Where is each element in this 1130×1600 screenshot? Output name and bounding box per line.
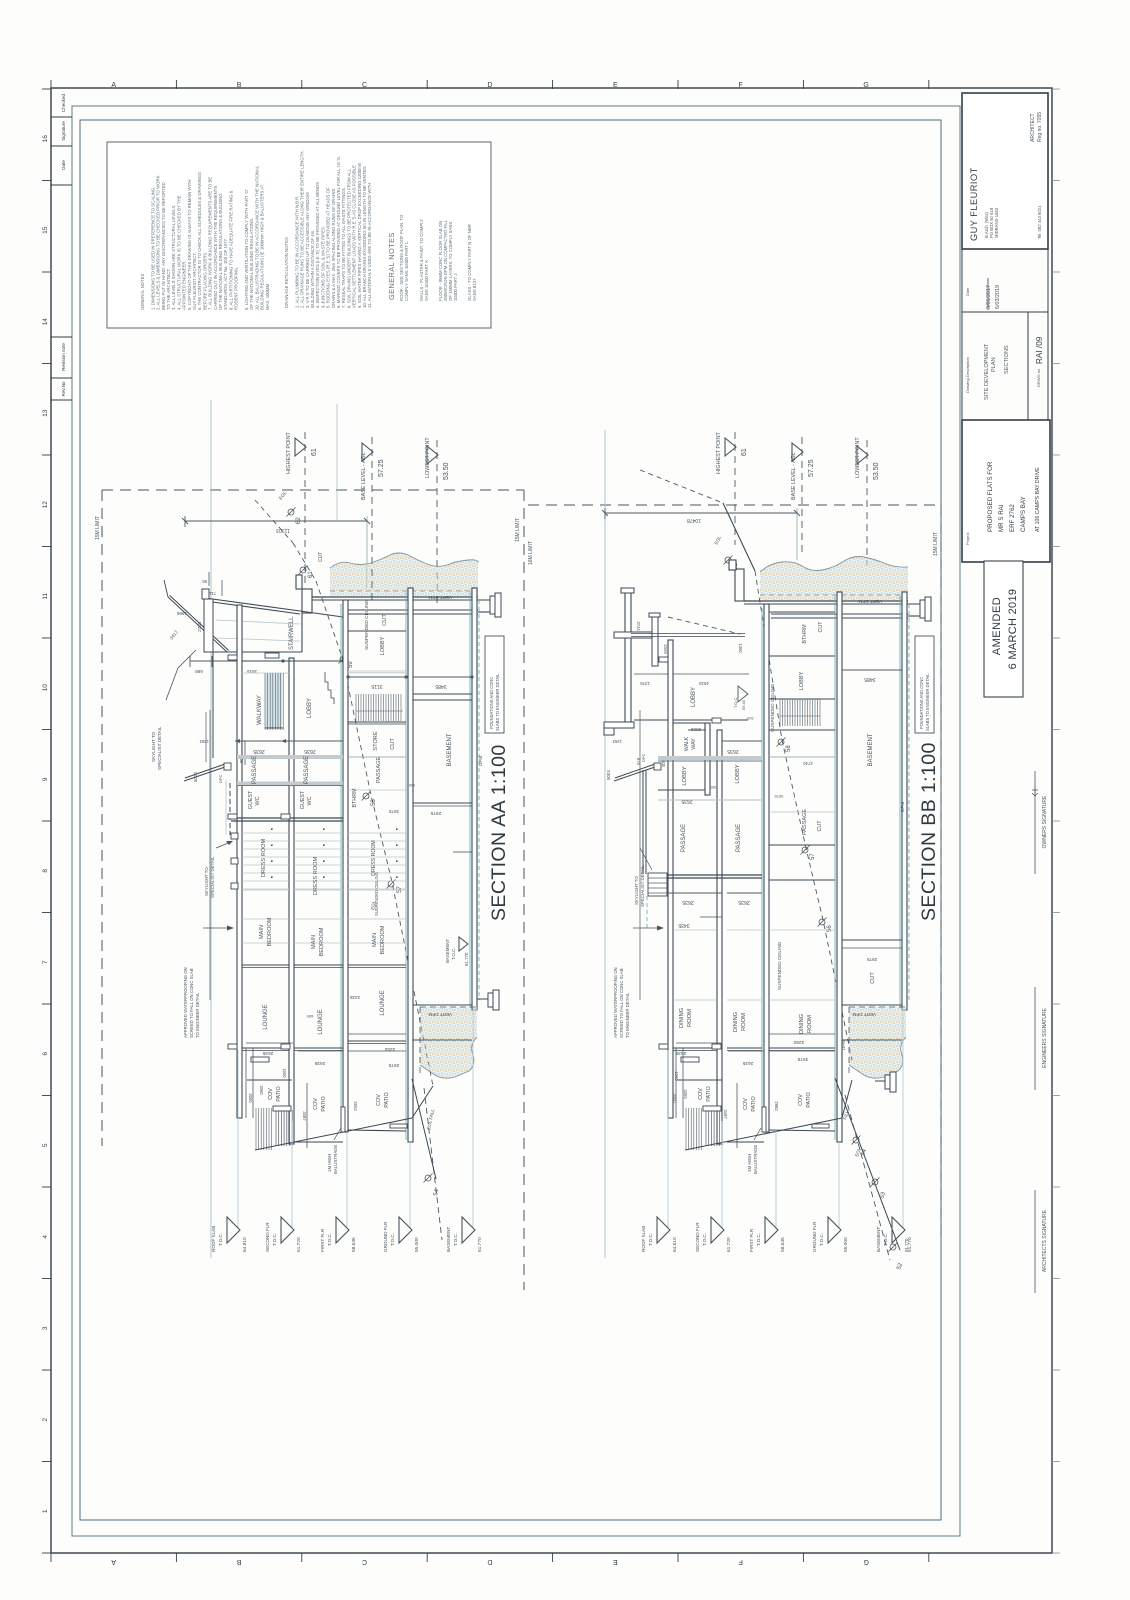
svg-text:VERT DPM: VERT DPM: [858, 599, 882, 604]
svg-text:1060: 1060: [674, 1071, 679, 1081]
svg-text:2635: 2635: [742, 1060, 753, 1066]
svg-text:CUT: CUT: [818, 621, 824, 633]
svg-text:PASSAGE: PASSAGE: [681, 824, 687, 852]
svg-text:GUY FLEURIOT: GUY FLEURIOT: [969, 167, 979, 241]
svg-text:3360: 3360: [259, 1085, 264, 1095]
svg-text:61: 61: [311, 448, 318, 456]
svg-text:2662: 2662: [353, 1101, 358, 1111]
svg-text:STORE: STORE: [373, 731, 379, 750]
svg-text:11303: 11303: [276, 527, 290, 533]
svg-text:WALK: WALK: [684, 736, 690, 751]
svg-text:ROOF SLAB: ROOF SLAB: [641, 1226, 646, 1252]
svg-text:6: 6: [42, 1052, 49, 1056]
svg-text:E: E: [613, 82, 618, 89]
svg-text:6 MARCH 2019: 6 MARCH 2019: [1007, 589, 1019, 670]
svg-text:SKYLIGHT TO: SKYLIGHT TO: [204, 867, 209, 896]
svg-text:ERF 2762: ERF 2762: [1009, 504, 1016, 532]
svg-text:PROPOSED FLATS FOR: PROPOSED FLATS FOR: [987, 461, 994, 532]
svg-text:T.O.C.: T.O.C.: [648, 1233, 653, 1246]
svg-text:LOWEST POINT: LOWEST POINT: [425, 437, 431, 478]
svg-text:OWNERS SIGNATURE: OWNERS SIGNATURE: [1042, 795, 1048, 848]
svg-text:3975: 3975: [388, 809, 399, 814]
svg-text:DRESS ROOM: DRESS ROOM: [313, 857, 319, 896]
svg-text:VERT DPM: VERT DPM: [852, 1012, 876, 1017]
svg-text:B: B: [237, 82, 242, 89]
svg-text:BASEMENT: BASEMENT: [876, 1227, 881, 1252]
svg-text:SPECIALIST DETAIL: SPECIALIST DETAIL: [157, 726, 162, 770]
svg-text:LOBBY: LOBBY: [735, 764, 741, 783]
svg-text:SUSPENDED CEILING: SUSPENDED CEILING: [374, 872, 379, 916]
svg-text:SLABS TO ENGINEER DETAIL: SLABS TO ENGINEER DETAIL: [925, 673, 930, 731]
svg-text:GROUND FLR: GROUND FLR: [812, 1221, 817, 1252]
svg-text:ROOF SLAB: ROOF SLAB: [211, 1226, 216, 1252]
svg-text:53.50: 53.50: [443, 462, 450, 480]
svg-text:B: B: [236, 1558, 241, 1565]
svg-text:SPECIALIST DETAIL: SPECIALIST DETAIL: [210, 856, 215, 898]
svg-text:WC: WC: [255, 796, 261, 805]
svg-text:A: A: [111, 82, 116, 89]
svg-text:5: 5: [42, 1143, 49, 1147]
svg-text:GUEST: GUEST: [300, 790, 306, 809]
svg-text:BEDROOM: BEDROOM: [380, 925, 386, 954]
svg-text:TO ENGINEER DETAIL: TO ENGINEER DETAIL: [195, 992, 200, 1038]
svg-text:BEDROOM: BEDROOM: [319, 927, 325, 956]
svg-text:10400 PART J: 10400 PART J: [453, 274, 458, 301]
svg-text:BTHRM: BTHRM: [802, 624, 808, 644]
svg-text:T.O.C.: T.O.C.: [819, 1233, 824, 1246]
svg-text:64.610: 64.610: [672, 1237, 678, 1252]
svg-text:D: D: [487, 1558, 492, 1565]
svg-text:LOUNGE: LOUNGE: [380, 990, 386, 1015]
svg-text:A: A: [111, 1558, 116, 1565]
svg-text:61.720: 61.720: [296, 1237, 302, 1252]
svg-text:AT 106 CAMPS BAY DRIVE: AT 106 CAMPS BAY DRIVE: [1035, 467, 1041, 532]
svg-text:15: 15: [42, 226, 49, 234]
svg-text:2740: 2740: [803, 761, 813, 766]
svg-text:16M LIMIT: 16M LIMIT: [528, 541, 534, 565]
svg-text:95: 95: [202, 579, 207, 584]
svg-text:CAMPS BAY: CAMPS BAY: [1020, 496, 1027, 532]
svg-text:LOBBY: LOBBY: [307, 698, 313, 718]
svg-text:ROOM: ROOM: [687, 1009, 693, 1027]
svg-text:11: 11: [42, 592, 49, 599]
svg-text:Signature: Signature: [61, 121, 66, 141]
svg-text:14: 14: [42, 318, 49, 326]
svg-text:MAIN: MAIN: [311, 935, 317, 949]
svg-text:2635: 2635: [253, 748, 265, 754]
svg-text:59.45: 59.45: [741, 699, 746, 710]
svg-text:7: 7: [42, 960, 49, 964]
svg-text:SKYLIGHT TO: SKYLIGHT TO: [151, 731, 156, 762]
svg-text:LOUNGE: LOUNGE: [263, 1004, 269, 1029]
svg-text:PATIO: PATIO: [321, 1096, 327, 1111]
svg-text:BTHRM: BTHRM: [352, 788, 358, 808]
svg-text:5003: 5003: [606, 770, 611, 780]
svg-text:FOUNDATIONS AND CONC: FOUNDATIONS AND CONC: [919, 677, 924, 729]
svg-text:2635: 2635: [304, 748, 316, 754]
svg-text:SCREED TO FALL ON CONC SLAB: SCREED TO FALL ON CONC SLAB: [619, 968, 624, 1038]
svg-text:711: 711: [209, 591, 216, 596]
svg-text:Tel. 082 443 6021: Tel. 082 443 6021: [1037, 205, 1042, 239]
svg-text:3435: 3435: [349, 995, 360, 1000]
svg-text:ARCHITECT: ARCHITECT: [1030, 113, 1036, 142]
svg-text:CUT: CUT: [390, 738, 396, 750]
svg-text:T.O.C.: T.O.C.: [390, 1233, 395, 1246]
svg-text:DPM: DPM: [841, 1040, 846, 1050]
svg-text:Reg no. 7055: Reg no. 7055: [1037, 112, 1043, 142]
svg-text:G: G: [863, 1558, 868, 1565]
svg-text:3576: 3576: [774, 794, 784, 799]
svg-text:PATIO: PATIO: [276, 1086, 282, 1101]
svg-text:CUT: CUT: [870, 972, 876, 984]
svg-text:COV: COV: [376, 1094, 382, 1106]
svg-text:2635: 2635: [314, 1060, 325, 1066]
svg-text:2349: 2349: [663, 644, 668, 654]
svg-text:T.O.C.: T.O.C.: [451, 948, 456, 960]
svg-text:T.O.C.: T.O.C.: [453, 1233, 458, 1246]
svg-text:COV: COV: [268, 1088, 274, 1100]
svg-text:COV: COV: [743, 1098, 749, 1110]
svg-text:T.O.C.: T.O.C.: [733, 697, 738, 708]
svg-text:SKYLIGHT TO: SKYLIGHT TO: [634, 876, 639, 905]
svg-text:2975: 2975: [430, 810, 441, 816]
svg-text:DRWG no: DRWG no: [1036, 368, 1041, 387]
svg-text:2635: 2635: [727, 748, 739, 754]
svg-text:DINING: DINING: [679, 1007, 685, 1028]
svg-text:GUEST: GUEST: [248, 790, 254, 809]
svg-text:61: 61: [741, 448, 748, 456]
svg-text:3975: 3975: [388, 1062, 399, 1068]
svg-text:3497: 3497: [723, 1109, 728, 1119]
svg-text:3115: 3115: [371, 683, 382, 689]
svg-text:T.O.C.: T.O.C.: [702, 1233, 707, 1246]
svg-text:T.O.C.: T.O.C.: [327, 1233, 332, 1246]
svg-text:51.770: 51.770: [477, 1237, 483, 1252]
svg-text:COMPLY SANS 10400 PART L: COMPLY SANS 10400 PART L: [404, 241, 409, 301]
svg-text:G: G: [863, 82, 868, 89]
svg-text:SECOND FLR: SECOND FLR: [265, 1222, 270, 1252]
svg-text:LOBBY: LOBBY: [691, 687, 697, 707]
svg-text:15M LIMIT: 15M LIMIT: [95, 516, 101, 540]
svg-text:CUT: CUT: [318, 552, 324, 562]
svg-text:LOBBY: LOBBY: [682, 766, 688, 785]
svg-text:SECOND FLR: SECOND FLR: [695, 1222, 700, 1252]
svg-text:PASSAGE: PASSAGE: [304, 756, 310, 784]
svg-text:RAI /09: RAI /09: [1035, 336, 1044, 364]
svg-text:DRAINAGE RETICULATION NOTES: DRAINAGE RETICULATION NOTES: [284, 237, 289, 308]
svg-text:3: 3: [42, 1326, 49, 1330]
svg-text:COV: COV: [798, 1094, 804, 1106]
svg-text:VERT DPM: VERT DPM: [428, 595, 452, 600]
svg-text:2703: 2703: [197, 621, 202, 632]
svg-text:APPROVED WATERPROOFING ON: APPROVED WATERPROOFING ON: [613, 967, 618, 1038]
svg-text:HIGHEST POINT: HIGHEST POINT: [716, 431, 722, 474]
svg-text:13: 13: [42, 409, 49, 417]
svg-text:12: 12: [42, 501, 49, 509]
svg-text:600: 600: [306, 1014, 313, 1019]
svg-text:STAIRWELL: STAIRWELL: [289, 616, 295, 650]
svg-text:3744: 3744: [636, 621, 641, 631]
svg-text:GENERAL NOTES: GENERAL NOTES: [140, 273, 145, 310]
svg-text:COV: COV: [698, 1088, 704, 1100]
svg-text:PATIO: PATIO: [706, 1086, 712, 1101]
svg-text:HIGHEST POINT: HIGHEST POINT: [286, 431, 292, 474]
svg-text:Checked: Checked: [61, 93, 66, 112]
svg-text:F: F: [739, 1558, 743, 1565]
svg-text:300: 300: [710, 785, 716, 789]
svg-text:T.O.C.: T.O.C.: [756, 1233, 761, 1246]
svg-text:1M HIGH: 1M HIGH: [327, 1154, 332, 1172]
svg-text:WC: WC: [307, 796, 313, 805]
svg-text:BALUSTRADE: BALUSTRADE: [333, 1145, 338, 1174]
svg-text:DINING: DINING: [799, 1013, 805, 1034]
svg-text:61.720: 61.720: [726, 1237, 732, 1252]
svg-text:MAIN: MAIN: [259, 925, 265, 939]
svg-text:10: 10: [42, 684, 49, 692]
svg-text:ARCHITECTS SIGNATURE: ARCHITECTS SIGNATURE: [1042, 1209, 1048, 1272]
svg-text:SECTIONS: SECTIONS: [1004, 345, 1010, 374]
svg-text:DPM: DPM: [900, 802, 905, 812]
svg-text:15M LIMIT: 15M LIMIT: [515, 518, 521, 542]
svg-text:T.O.C.: T.O.C.: [272, 1233, 277, 1246]
svg-text:4919: 4919: [699, 681, 709, 686]
svg-text:11. ALL MATERIALS USED ARE TO: 11. ALL MATERIALS USED ARE TO BE IN ACCO…: [367, 183, 372, 308]
svg-text:F: F: [739, 82, 743, 89]
svg-text:Date: Date: [61, 160, 66, 170]
svg-text:1050: 1050: [282, 1068, 287, 1078]
svg-text:DPC: DPC: [641, 753, 646, 762]
svg-text:3485: 3485: [864, 676, 876, 682]
svg-text:C: C: [362, 1558, 367, 1565]
svg-text:2975: 2975: [866, 957, 877, 962]
svg-text:3355: 3355: [683, 1089, 688, 1099]
svg-text:DRESS ROOM: DRESS ROOM: [371, 840, 377, 875]
svg-text:10478: 10478: [687, 517, 701, 523]
svg-text:DPC: DPC: [218, 774, 223, 783]
svg-text:3975: 3975: [797, 1056, 808, 1062]
svg-text:3435: 3435: [678, 922, 689, 928]
svg-text:LOWEST POINT: LOWEST POINT: [855, 437, 861, 478]
svg-text:64.810: 64.810: [242, 1237, 248, 1252]
svg-text:MAX. 100MM: MAX. 100MM: [265, 284, 270, 310]
svg-text:BASEMENT: BASEMENT: [868, 733, 874, 766]
svg-text:VERT DPM: VERT DPM: [428, 1012, 452, 1017]
svg-text:58.636: 58.636: [351, 1237, 357, 1252]
svg-text:1360: 1360: [738, 643, 743, 653]
svg-text:1376: 1376: [640, 681, 650, 686]
svg-text:57: 57: [810, 853, 816, 860]
svg-text:AMENDED: AMENDED: [991, 597, 1003, 656]
svg-text:BASEMENT: BASEMENT: [447, 733, 453, 766]
svg-text:BEDROOM: BEDROOM: [267, 917, 273, 946]
svg-text:62: 62: [296, 517, 302, 524]
svg-text:5003: 5003: [193, 772, 198, 782]
svg-text:T.O.C.: T.O.C.: [218, 1233, 223, 1246]
svg-text:FOUNDATIONS AND CONC: FOUNDATIONS AND CONC: [489, 677, 494, 729]
svg-text:SANS 10400 PART K: SANS 10400 PART K: [424, 260, 429, 301]
svg-text:57.25: 57.25: [378, 459, 385, 477]
svg-text:6805: 6805: [690, 727, 701, 732]
svg-text:SECTION BB 1:100: SECTION BB 1:100: [918, 742, 940, 921]
svg-text:LOBBY: LOBBY: [799, 671, 805, 690]
svg-text:58: 58: [786, 745, 792, 752]
svg-text:1: 1: [42, 1509, 49, 1513]
svg-text:3250: 3250: [793, 1039, 804, 1045]
svg-text:SITE DEVELOPMENT: SITE DEVELOPMENT: [984, 343, 990, 400]
svg-text:2: 2: [42, 1418, 49, 1422]
svg-text:ROOM: ROOM: [807, 1015, 813, 1033]
svg-text:1986: 1986: [176, 611, 187, 616]
svg-text:LOBBY: LOBBY: [380, 636, 386, 655]
svg-text:PASSAGE: PASSAGE: [252, 756, 258, 784]
svg-text:TO ENGINEER DETAIL: TO ENGINEER DETAIL: [625, 992, 630, 1038]
svg-text:1293: 1293: [199, 739, 209, 744]
svg-text:6/03/2019: 6/03/2019: [995, 285, 1001, 309]
svg-text:59: 59: [348, 661, 354, 668]
svg-text:DINING: DINING: [733, 1011, 739, 1032]
svg-text:DPM: DPM: [478, 756, 483, 766]
svg-text:T.O.C.: T.O.C.: [883, 1233, 888, 1246]
svg-text:2982: 2982: [774, 1101, 779, 1111]
svg-text:2635: 2635: [262, 1050, 273, 1056]
svg-text:ROOM: ROOM: [741, 1013, 747, 1031]
svg-text:SANS 8137: SANS 8137: [472, 278, 477, 301]
svg-text:1293: 1293: [612, 739, 622, 744]
svg-text:2635: 2635: [738, 899, 750, 905]
svg-text:C: C: [362, 82, 367, 89]
svg-text:2635: 2635: [675, 1050, 686, 1056]
svg-text:D: D: [487, 82, 492, 89]
svg-text:58: 58: [371, 799, 377, 806]
svg-text:9: 9: [42, 777, 49, 781]
svg-text:PATIO: PATIO: [384, 1092, 390, 1107]
svg-text:BALUSTRADE: BALUSTRADE: [753, 1145, 758, 1174]
svg-text:PLAN: PLAN: [991, 357, 997, 372]
svg-text:Drawing Description: Drawing Description: [965, 357, 970, 393]
svg-text:LOUNGE: LOUNGE: [318, 1009, 324, 1034]
svg-text:FIRST FLR: FIRST FLR: [320, 1228, 325, 1252]
svg-text:510: 510: [409, 783, 415, 787]
svg-text:SLABS TO ENGINEER DETAIL: SLABS TO ENGINEER DETAIL: [495, 673, 500, 731]
svg-text:PATIO: PATIO: [806, 1092, 812, 1107]
svg-text:SUSPENDED CEILING: SUSPENDED CEILING: [777, 941, 782, 990]
svg-text:55.000: 55.000: [843, 1237, 849, 1252]
svg-text:2635: 2635: [681, 798, 692, 804]
svg-text:PASSAGE: PASSAGE: [736, 824, 742, 852]
svg-text:8: 8: [42, 869, 49, 873]
svg-text:CUT: CUT: [382, 614, 388, 626]
svg-text:51.770: 51.770: [907, 1237, 913, 1252]
svg-text:3485: 3485: [435, 683, 447, 689]
svg-text:SUSPENDED CEILING: SUSPENDED CEILING: [770, 683, 775, 732]
svg-text:Rev.No: Rev.No: [61, 381, 66, 396]
svg-text:PASSAGE: PASSAGE: [802, 809, 808, 836]
svg-text:1M HIGH: 1M HIGH: [747, 1154, 752, 1172]
svg-text:ENGINEERS SIGNATURE: ENGINEERS SIGNATURE: [1042, 1008, 1048, 1068]
svg-text:57.25: 57.25: [808, 459, 815, 477]
svg-text:Date: Date: [965, 287, 970, 296]
svg-text:2000: 2000: [248, 1093, 253, 1103]
svg-text:BASEMENT: BASEMENT: [445, 939, 450, 963]
svg-text:DRESS ROOM: DRESS ROOM: [261, 839, 267, 878]
svg-text:WAY: WAY: [691, 738, 697, 750]
svg-text:MR S RAI: MR S RAI: [998, 504, 1005, 532]
svg-text:GENERAL NOTES: GENERAL NOTES: [387, 232, 396, 300]
svg-text:58.635: 58.635: [780, 1237, 786, 1252]
svg-text:E: E: [613, 1558, 618, 1565]
svg-text:61: 61: [308, 571, 314, 578]
svg-text:16: 16: [42, 135, 49, 143]
svg-text:PASSAGE: PASSAGE: [376, 757, 382, 784]
svg-text:51.770: 51.770: [464, 952, 469, 966]
svg-text:SCREED TO FALL ON CONC SLAB: SCREED TO FALL ON CONC SLAB: [189, 968, 194, 1038]
svg-text:55.000: 55.000: [414, 1237, 420, 1252]
svg-text:SUSPENDED CEILING: SUSPENDED CEILING: [364, 599, 370, 650]
svg-text:Project: Project: [965, 532, 970, 545]
svg-text:698: 698: [195, 669, 203, 674]
svg-text:15M LIMIT: 15M LIMIT: [933, 532, 939, 556]
svg-text:RODENT PROOFING.: RODENT PROOFING.: [234, 267, 239, 310]
svg-text:WALKWAY: WALKWAY: [257, 695, 263, 725]
svg-text:56: 56: [827, 925, 833, 932]
svg-text:Revision note: Revision note: [61, 343, 66, 371]
svg-text:PATIO: PATIO: [751, 1096, 757, 1111]
svg-text:4: 4: [42, 1235, 49, 1239]
svg-text:53.50: 53.50: [873, 462, 880, 480]
svg-text:510: 510: [746, 716, 753, 721]
svg-text:SECTION AA 1:100: SECTION AA 1:100: [488, 744, 510, 921]
svg-text:COV: COV: [313, 1098, 319, 1110]
svg-text:BASEMENT: BASEMENT: [446, 1227, 451, 1252]
svg-text:APPROVED WATERPROOFING ON: APPROVED WATERPROOFING ON: [183, 967, 188, 1038]
svg-text:3487: 3487: [302, 1111, 307, 1121]
svg-text:2635: 2635: [682, 899, 694, 905]
svg-text:CUT: CUT: [817, 820, 823, 832]
svg-text:MIDRAND 1683: MIDRAND 1683: [994, 207, 999, 238]
svg-text:GROUND FLR: GROUND FLR: [383, 1221, 388, 1252]
svg-text:3/06/2017: 3/06/2017: [986, 285, 992, 309]
svg-text:MAIN: MAIN: [372, 933, 378, 947]
svg-text:FIRST FLR: FIRST FLR: [749, 1228, 754, 1252]
